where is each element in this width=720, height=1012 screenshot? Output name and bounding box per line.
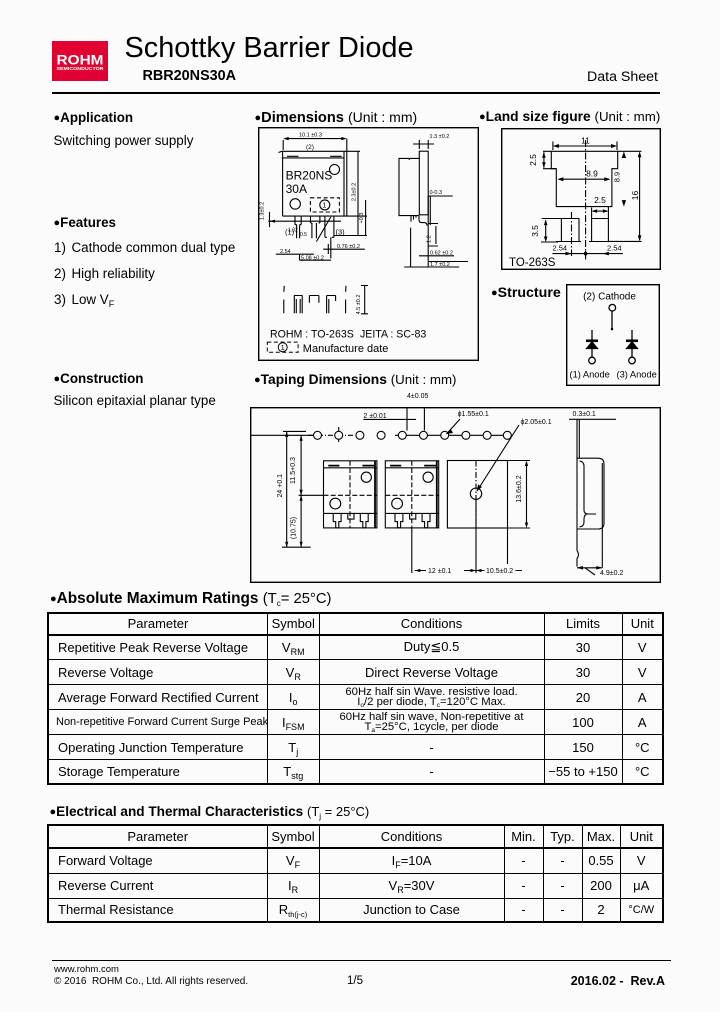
svg-text:(3) Anode: (3) Anode	[617, 369, 657, 379]
svg-text:16: 16	[630, 191, 640, 201]
svg-text:2 ±0.01: 2 ±0.01	[363, 413, 386, 420]
svg-text:1.32: 1.32	[288, 228, 298, 234]
svg-text:TO-263S: TO-263S	[509, 257, 556, 269]
svg-text:Manufacture date: Manufacture date	[303, 343, 389, 355]
svg-text:3.5: 3.5	[530, 225, 540, 237]
svg-text:2.54: 2.54	[553, 244, 568, 253]
svg-text:(2) Cathode: (2) Cathode	[583, 291, 636, 302]
svg-text:(10.75): (10.75)	[291, 517, 298, 539]
svg-text:0.5: 0.5	[300, 232, 307, 238]
svg-text:(3): (3)	[336, 228, 346, 237]
svg-text:4.5 ±0.2: 4.5 ±0.2	[356, 295, 362, 315]
svg-text:2.3±0.2: 2.3±0.2	[352, 183, 358, 201]
svg-text:2.5: 2.5	[528, 154, 538, 166]
svg-text:1: 1	[281, 343, 285, 352]
svg-text:2.5: 2.5	[594, 195, 606, 205]
svg-text:1: 1	[322, 201, 326, 210]
svg-text:0.3±0.1: 0.3±0.1	[573, 411, 596, 418]
svg-text:2.54: 2.54	[607, 244, 622, 253]
svg-text:0-0.3: 0-0.3	[430, 190, 443, 196]
svg-text:1.2: 1.2	[427, 235, 433, 243]
svg-text:ϕ1.55±0.1: ϕ1.55±0.1	[458, 411, 489, 418]
svg-text:BR20NS: BR20NS	[286, 168, 333, 182]
svg-text:ROHM : TO-263S: ROHM : TO-263S	[270, 329, 354, 341]
svg-text:+0.3: +0.3	[359, 213, 365, 224]
svg-text:1.7 ±0.2: 1.7 ±0.2	[430, 262, 450, 268]
svg-text:11: 11	[581, 136, 590, 146]
svg-text:30A: 30A	[286, 182, 307, 196]
svg-text:24 +0.1: 24 +0.1	[277, 474, 284, 498]
svg-text:0.62 ±0.2: 0.62 ±0.2	[430, 251, 453, 257]
svg-text:0.76 ±0.2: 0.76 ±0.2	[337, 244, 360, 250]
svg-text:ϕ2.05±0.1: ϕ2.05±0.1	[521, 419, 552, 426]
svg-text:8.9: 8.9	[586, 169, 598, 179]
svg-text:JEITA : SC-83: JEITA : SC-83	[360, 329, 426, 341]
svg-text:10.1 ±0.3: 10.1 ±0.3	[299, 133, 322, 139]
svg-text:10.5±0.2: 10.5±0.2	[486, 568, 513, 575]
svg-text:1.3±0.2: 1.3±0.2	[260, 202, 266, 220]
svg-text:2.54: 2.54	[280, 249, 291, 255]
svg-text:4.9±0.2: 4.9±0.2	[600, 570, 623, 577]
svg-text:13.6±0.2: 13.6±0.2	[516, 475, 523, 502]
svg-text:11.5+0.3: 11.5+0.3	[290, 457, 297, 484]
svg-text:(1) Anode: (1) Anode	[570, 369, 610, 379]
svg-text:(2): (2)	[306, 144, 314, 151]
svg-text:8.9: 8.9	[613, 172, 622, 182]
svg-text:5.08 ±0.2: 5.08 ±0.2	[301, 256, 324, 262]
svg-text:SEMICONDUCTOR: SEMICONDUCTOR	[57, 66, 105, 71]
svg-text:1.3 ±0.2: 1.3 ±0.2	[430, 134, 450, 140]
svg-text:12 ±0.1: 12 ±0.1	[428, 568, 451, 575]
